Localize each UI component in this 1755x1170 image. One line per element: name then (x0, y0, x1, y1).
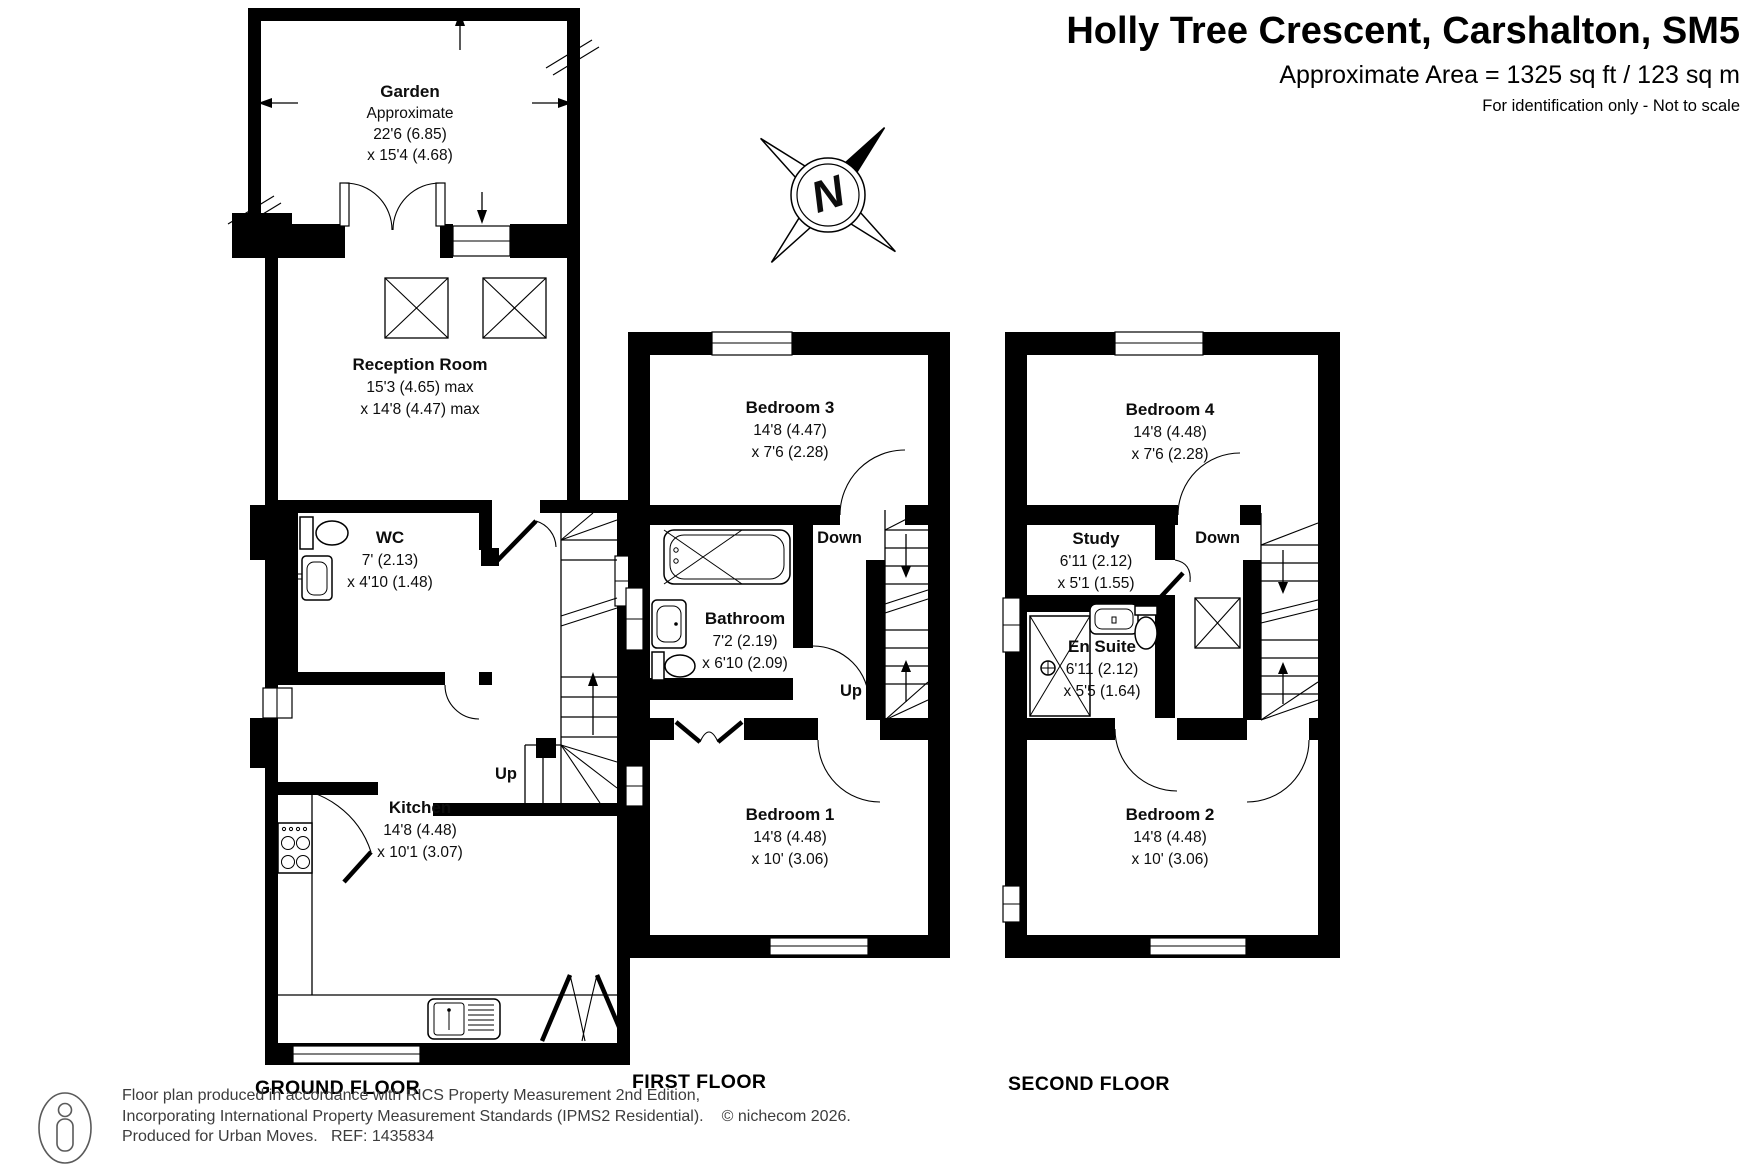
footer: Floor plan produced in accordance with R… (30, 1086, 851, 1170)
kitchen-sink-icon (428, 999, 500, 1039)
study-dim1: 6'11 (2.12) (1060, 553, 1132, 570)
kitchen-dim1: 14'8 (4.48) (383, 822, 457, 839)
reception-dim1: 15'3 (4.65) max (366, 379, 473, 396)
second-stairs-down-label: Down (1195, 529, 1240, 547)
ensuite-dim2: x 5'5 (1.64) (1063, 683, 1140, 700)
wc-dim2: x 4'10 (1.48) (347, 574, 433, 591)
second-floor-plan: Bedroom 4 14'8 (4.48) x 7'6 (2.28) Study… (1000, 325, 1345, 970)
bedroom3-dim1: 14'8 (4.47) (753, 422, 827, 439)
footer-copyright: © nichecom 2026. (722, 1107, 851, 1128)
footer-text: Floor plan produced in accordance with R… (122, 1086, 851, 1148)
wc-dim1: 7' (2.13) (362, 552, 418, 569)
bedroom3-dim2: x 7'6 (2.28) (751, 444, 828, 461)
bedroom3-label: Bedroom 3 (746, 398, 835, 417)
reception-skylights (385, 278, 546, 338)
stove-icon (278, 823, 312, 873)
bedroom4-dim1: 14'8 (4.48) (1133, 424, 1207, 441)
kitchen-label: Kitchen (389, 798, 451, 817)
bathroom-toilet-icon (652, 652, 695, 680)
garden-dim2: x 15'4 (4.68) (367, 147, 453, 164)
first-stairs-up-label: Up (840, 682, 862, 700)
first-stairs-down-label: Down (817, 529, 862, 547)
footer-line3: Produced for Urban Moves. REF: 1435834 (122, 1127, 851, 1148)
ground-floor-plan: Garden Approximate 22'6 (6.85) x 15'4 (4… (225, 0, 645, 1075)
reception-label: Reception Room (352, 355, 487, 374)
bath-icon (664, 530, 790, 584)
bedroom1-dim1: 14'8 (4.48) (753, 829, 827, 846)
second-stairs (1261, 513, 1318, 720)
first-floor-text: Bedroom 3 14'8 (4.47) x 7'6 (2.28) Bathr… (702, 398, 862, 868)
ensuite-dim1: 6'11 (2.12) (1066, 661, 1138, 678)
garden-dim1: 22'6 (6.85) (373, 126, 447, 143)
kitchen-double-doors (542, 975, 625, 1041)
bathroom-dim1: 7'2 (2.19) (713, 633, 778, 650)
footer-line2: Incorporating International Property Mea… (122, 1107, 704, 1128)
reception-dim2: x 14'8 (4.47) max (360, 401, 480, 418)
kitchen-dim2: x 10'1 (3.07) (377, 844, 463, 861)
bedroom1-dim2: x 10' (3.06) (751, 851, 828, 868)
wc-label: WC (376, 528, 404, 547)
approximate-area: Approximate Area = 1325 sq ft / 123 sq m (1066, 61, 1740, 90)
bathroom-dim2: x 6'10 (2.09) (702, 655, 788, 672)
bedroom4-dim2: x 7'6 (2.28) (1131, 446, 1208, 463)
footer-line1: Floor plan produced in accordance with R… (122, 1086, 851, 1107)
producer-logo-icon (30, 1086, 100, 1170)
bedroom2-dim2: x 10' (3.06) (1131, 851, 1208, 868)
ensuite-label: En Suite (1068, 637, 1136, 656)
study-label: Study (1072, 529, 1120, 548)
ground-stairs-up-label: Up (495, 765, 517, 783)
ensuite-toilet-icon (1135, 606, 1157, 649)
ground-floor-text: Garden Approximate 22'6 (6.85) x 15'4 (4… (347, 82, 517, 861)
bedroom2-dim1: 14'8 (4.48) (1133, 829, 1207, 846)
compass-icon: N (733, 100, 923, 290)
ground-stairs (525, 513, 617, 803)
bedroom2-label: Bedroom 2 (1126, 805, 1215, 824)
garden-label: Garden (380, 82, 440, 101)
wc-fixtures (296, 517, 348, 600)
garden-french-doors (340, 183, 445, 230)
page-title: Holly Tree Crescent, Carshalton, SM5 (1066, 10, 1740, 52)
scale-disclaimer: For identification only - Not to scale (1066, 97, 1740, 116)
bathroom-sink-icon (652, 600, 686, 648)
study-dim2: x 5'1 (1.55) (1057, 575, 1134, 592)
garden-approx: Approximate (366, 105, 453, 122)
bedroom4-label: Bedroom 4 (1126, 400, 1215, 419)
first-stairs (885, 508, 928, 720)
second-floor-caption: SECOND FLOOR (1008, 1073, 1170, 1096)
bedroom1-label: Bedroom 1 (746, 805, 835, 824)
bathroom-label: Bathroom (705, 609, 785, 628)
header: Holly Tree Crescent, Carshalton, SM5 App… (1066, 10, 1740, 116)
skylight-icon (1195, 598, 1240, 648)
first-floor-plan: Bedroom 3 14'8 (4.47) x 7'6 (2.28) Bathr… (620, 325, 960, 970)
